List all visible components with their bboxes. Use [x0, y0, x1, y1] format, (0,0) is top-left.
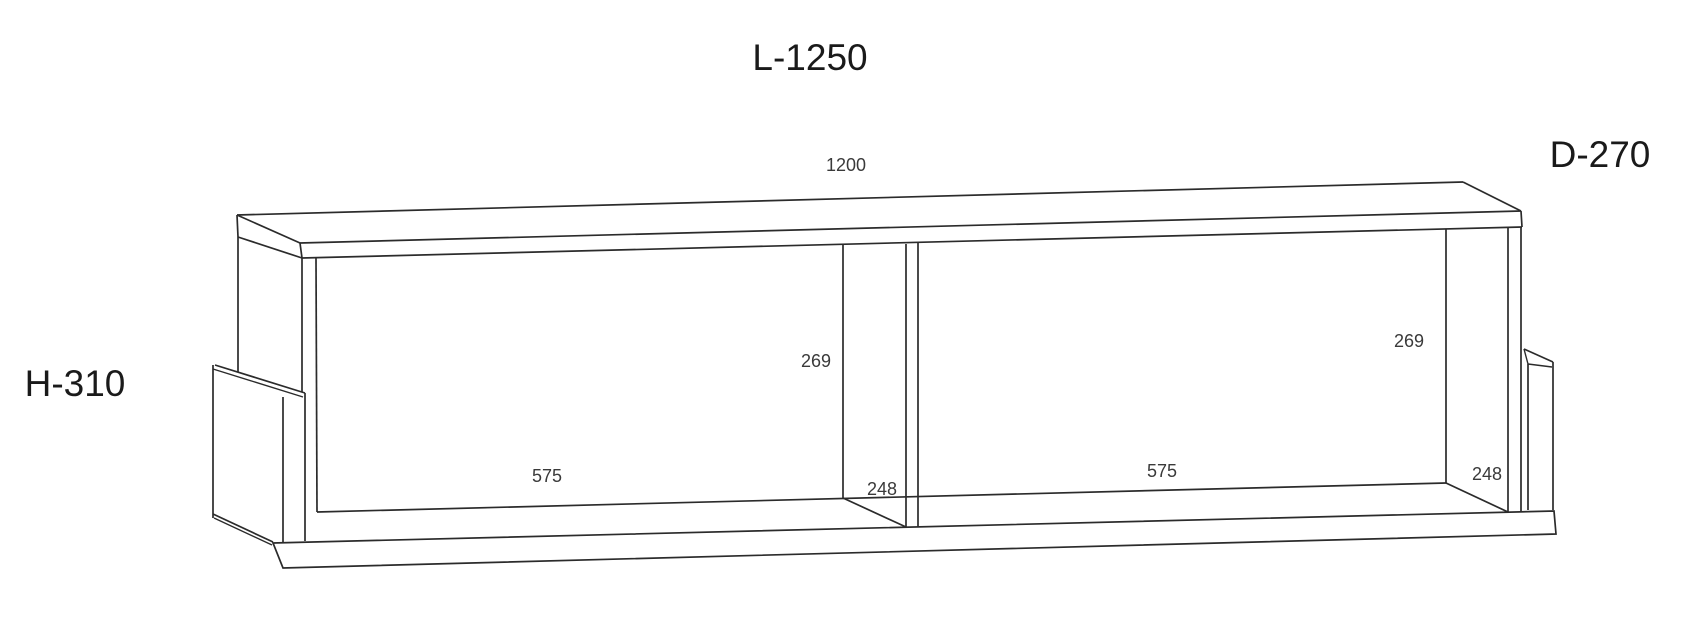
right-inner-depth-label: 248	[1472, 464, 1502, 484]
left-compartment-width-label: 575	[532, 466, 562, 486]
left-inner-height-label: 269	[801, 351, 831, 371]
left-wall-bracket	[213, 365, 305, 546]
overall-depth-label: D-270	[1550, 134, 1651, 175]
furniture-technical-drawing: L-1250 D-270 H-310 1200 269 269 575 575 …	[0, 0, 1700, 629]
top-board	[237, 182, 1522, 258]
right-inner-height-label: 269	[1394, 331, 1424, 351]
overall-height-label: H-310	[25, 363, 126, 404]
right-compartment-width-label: 575	[1147, 461, 1177, 481]
left-inner-depth-label: 248	[867, 479, 897, 499]
right-wall-bracket	[1524, 349, 1553, 510]
interior-width-label: 1200	[826, 155, 866, 175]
bottom-board	[273, 511, 1556, 568]
overall-length-label: L-1250	[752, 37, 867, 78]
technical-drawing-canvas: L-1250 D-270 H-310 1200 269 269 575 575 …	[0, 0, 1700, 629]
